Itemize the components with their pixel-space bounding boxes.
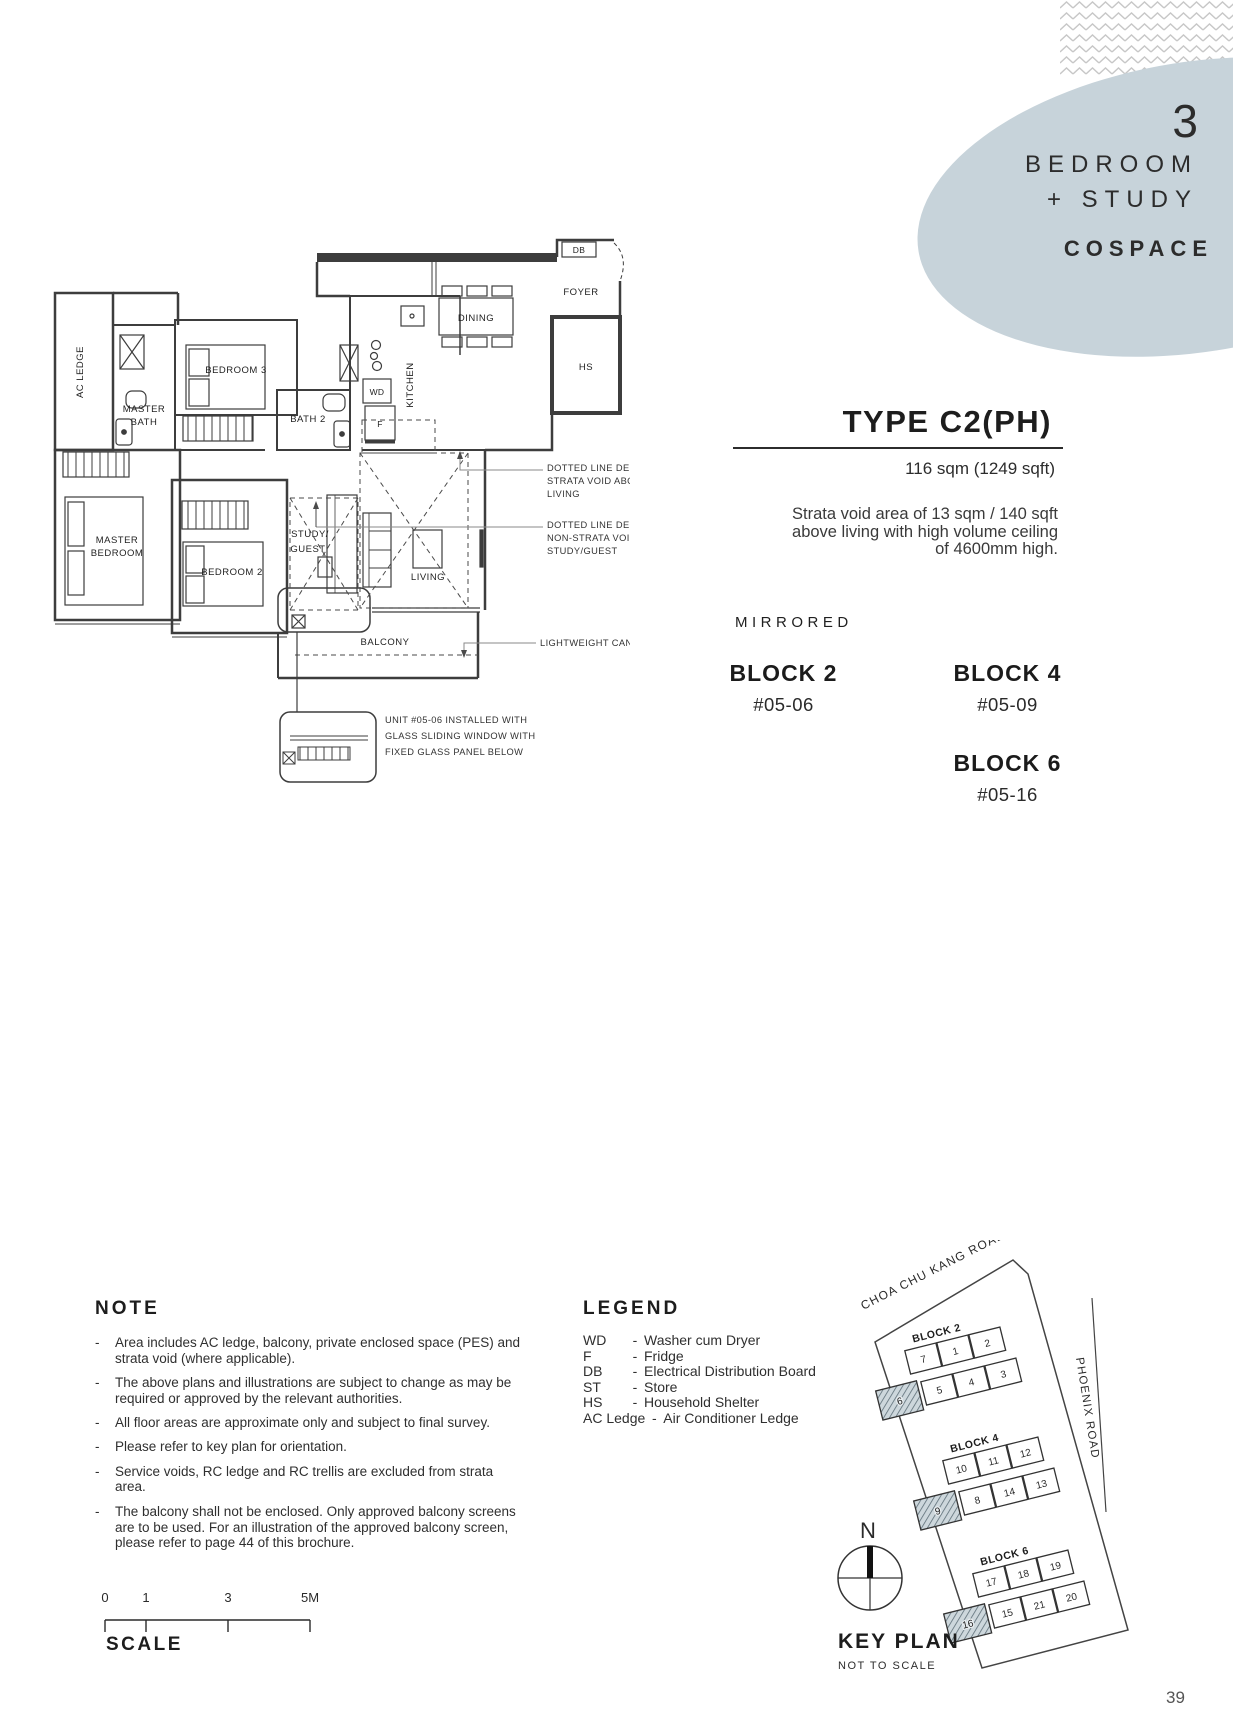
note-item: -Please refer to key plan for orientatio…	[95, 1439, 523, 1455]
note-item: -The above plans and illustrations are s…	[95, 1375, 523, 1407]
keyplan-block-4: BLOCK 4 10 11 12 9 8 14 13	[902, 1421, 1060, 1531]
room-label-wd: WD	[370, 387, 385, 397]
keyplan-title: KEY PLAN	[838, 1630, 960, 1654]
legend-abbr: ST	[583, 1380, 626, 1396]
keyplan-drawing: CHOA CHU KANG ROAD PHOENIX ROAD N BLOCK …	[760, 1240, 1130, 1680]
legend-desc: Washer cum Dryer	[644, 1333, 760, 1349]
scale-tick-label: 1	[142, 1590, 149, 1605]
mirrored-label: MIRRORED	[735, 614, 853, 631]
bullet-dash: -	[95, 1375, 115, 1407]
room-label-fridge: F	[377, 419, 383, 429]
legend-dash: -	[626, 1333, 644, 1349]
annotation-strata-void-3: LIVING	[547, 489, 580, 499]
type-title: TYPE C2(PH)	[843, 404, 1052, 440]
phoenix-road-line	[1092, 1298, 1106, 1512]
void-note-line1: Strata void area of 13 sqm / 140 sqft	[792, 506, 1058, 524]
scale-tick-label: 0	[101, 1590, 108, 1605]
note-item-text: Please refer to key plan for orientation…	[115, 1439, 347, 1455]
entry-door-swing	[614, 243, 623, 281]
legend-dash: -	[626, 1349, 644, 1365]
note-item-text: The balcony shall not be enclosed. Only …	[115, 1504, 523, 1551]
brochure-page: 3 BEDROOM + STUDY COSPACE	[0, 0, 1233, 1718]
note-title: NOTE	[95, 1298, 523, 1320]
compass-n-label: N	[860, 1518, 876, 1543]
annotation-canopy: LIGHTWEIGHT CANOPY ABOVE	[540, 638, 630, 648]
strata-void-note: Strata void area of 13 sqm / 140 sqft ab…	[792, 506, 1058, 559]
hero-title-line1: BEDROOM	[1025, 151, 1198, 179]
bullet-dash: -	[95, 1439, 115, 1455]
page-number: 39	[1166, 1688, 1185, 1708]
legend-abbr: AC Ledge	[583, 1411, 645, 1427]
note-item: -Area includes AC ledge, balcony, privat…	[95, 1335, 523, 1367]
room-label-bath2: BATH 2	[290, 414, 326, 425]
legend-dash: -	[626, 1364, 644, 1380]
block-6-cell: BLOCK 6 #05-16	[930, 750, 1085, 806]
room-label-dining: DINING	[458, 313, 494, 324]
note-item: -The balcony shall not be enclosed. Only…	[95, 1504, 523, 1551]
wardrobe-bedroom3	[183, 416, 253, 441]
hero-title-line2: + STUDY	[1025, 186, 1198, 214]
void-note-line2: above living with high volume ceiling	[792, 524, 1058, 542]
annotation-non-strata-void-3: STUDY/GUEST	[547, 546, 618, 556]
note-section: NOTE -Area includes AC ledge, balcony, p…	[95, 1298, 523, 1560]
room-label-db: DB	[573, 245, 585, 255]
block-2-cell: BLOCK 2 #05-06	[706, 660, 861, 716]
bullet-dash: -	[95, 1504, 115, 1551]
note-item: -Service voids, RC ledge and RC trellis …	[95, 1464, 523, 1496]
legend-dash: -	[626, 1380, 644, 1396]
annotation-window-detail-3: FIXED GLASS PANEL BELOW	[385, 747, 523, 757]
room-label-ac-ledge: AC LEDGE	[75, 346, 86, 398]
bed-bedroom3	[186, 345, 265, 409]
void-arrows	[313, 451, 467, 658]
note-item-text: Area includes AC ledge, balcony, private…	[115, 1335, 523, 1367]
room-label-hs: HS	[579, 362, 593, 373]
tv-console	[480, 530, 483, 567]
room-label-master-bedroom2: BEDROOM	[91, 548, 144, 559]
block-6-unit: #05-16	[930, 784, 1085, 806]
block-4-cell: BLOCK 4 #05-09	[930, 660, 1085, 716]
scale-tick-label: 5M	[301, 1590, 319, 1605]
room-label-master-bath2: BATH	[131, 417, 158, 428]
hero-text: 3 BEDROOM + STUDY COSPACE	[1025, 98, 1198, 262]
bullet-dash: -	[95, 1415, 115, 1431]
legend-abbr: HS	[583, 1395, 626, 1411]
brand-name: COSPACE	[1025, 236, 1213, 262]
room-label-balcony: BALCONY	[361, 637, 410, 648]
block-2-name: BLOCK 2	[706, 660, 861, 687]
legend-desc: Store	[644, 1380, 677, 1396]
keyplan-block-2: BLOCK 2 7 1 2 6 5 4 3	[864, 1311, 1022, 1421]
room-label-master-bedroom: MASTER	[96, 535, 139, 546]
annotation-window-detail-2: GLASS SLIDING WINDOW WITH	[385, 731, 536, 741]
study-bed	[327, 495, 357, 593]
legend-dash: -	[626, 1395, 644, 1411]
room-label-foyer: FOYER	[563, 287, 598, 298]
note-item: -All floor areas are approximate only an…	[95, 1415, 523, 1431]
wardrobe-master	[63, 452, 129, 477]
void-note-line3: of 4600mm high.	[792, 541, 1058, 559]
legend-dash: -	[645, 1411, 663, 1427]
unit-area: 116 sqm (1249 sqft)	[905, 459, 1055, 479]
legend-desc: Household Shelter	[644, 1395, 759, 1411]
block-2-unit: #05-06	[706, 694, 861, 716]
note-list: -Area includes AC ledge, balcony, privat…	[95, 1335, 523, 1551]
room-label-bedroom2: BEDROOM 2	[201, 567, 263, 578]
keyplan-subtitle: NOT TO SCALE	[838, 1660, 936, 1672]
legend-abbr: F	[583, 1349, 626, 1365]
legend-abbr: DB	[583, 1364, 626, 1380]
compass: N	[838, 1518, 902, 1610]
note-item-text: The above plans and illustrations are su…	[115, 1375, 523, 1407]
floorplan-walls	[55, 240, 623, 678]
bullet-dash: -	[95, 1335, 115, 1367]
room-label-study: STUDY/	[291, 529, 329, 540]
scale-bar: 0 1 3 5M	[95, 1588, 325, 1638]
room-label-living: LIVING	[411, 572, 445, 583]
scale-title: SCALE	[106, 1634, 183, 1656]
floorplan-drawing: AC LEDGE MASTER BATH BEDROOM 3 BATH 2 WD…	[40, 195, 630, 795]
note-item-text: All floor areas are approximate only and…	[115, 1415, 490, 1431]
annotation-strata-void-2: STRATA VOID ABOVE	[547, 476, 630, 486]
block-4-name: BLOCK 4	[930, 660, 1085, 687]
annotation-non-strata-void-2: NON-STRATA VOID ABOVE	[547, 533, 630, 543]
legend-abbr: WD	[583, 1333, 626, 1349]
note-item-text: Service voids, RC ledge and RC trellis a…	[115, 1464, 523, 1496]
scale-tick-label: 3	[224, 1590, 231, 1605]
room-label-master-bath: MASTER	[123, 404, 166, 415]
annotation-leaders	[316, 458, 543, 650]
bullet-dash: -	[95, 1464, 115, 1496]
title-rule	[733, 447, 1063, 449]
plan-annotations: DOTTED LINE DENOTES STRATA VOID ABOVE LI…	[385, 463, 630, 757]
annotation-strata-void: DOTTED LINE DENOTES	[547, 463, 630, 473]
compass-needle	[867, 1546, 873, 1578]
block-4-unit: #05-09	[930, 694, 1085, 716]
hero-number: 3	[1025, 98, 1198, 144]
room-label-guest: GUEST	[290, 544, 325, 555]
annotation-window-detail: UNIT #05-06 INSTALLED WITH	[385, 715, 527, 725]
legend-desc: Fridge	[644, 1349, 684, 1365]
wardrobe-bedroom2	[182, 501, 248, 529]
annotation-non-strata-void: DOTTED LINE DENOTES	[547, 520, 630, 530]
room-label-kitchen: KITCHEN	[405, 362, 416, 407]
room-label-bedroom3: BEDROOM 3	[205, 365, 267, 376]
block-6-name: BLOCK 6	[930, 750, 1085, 777]
